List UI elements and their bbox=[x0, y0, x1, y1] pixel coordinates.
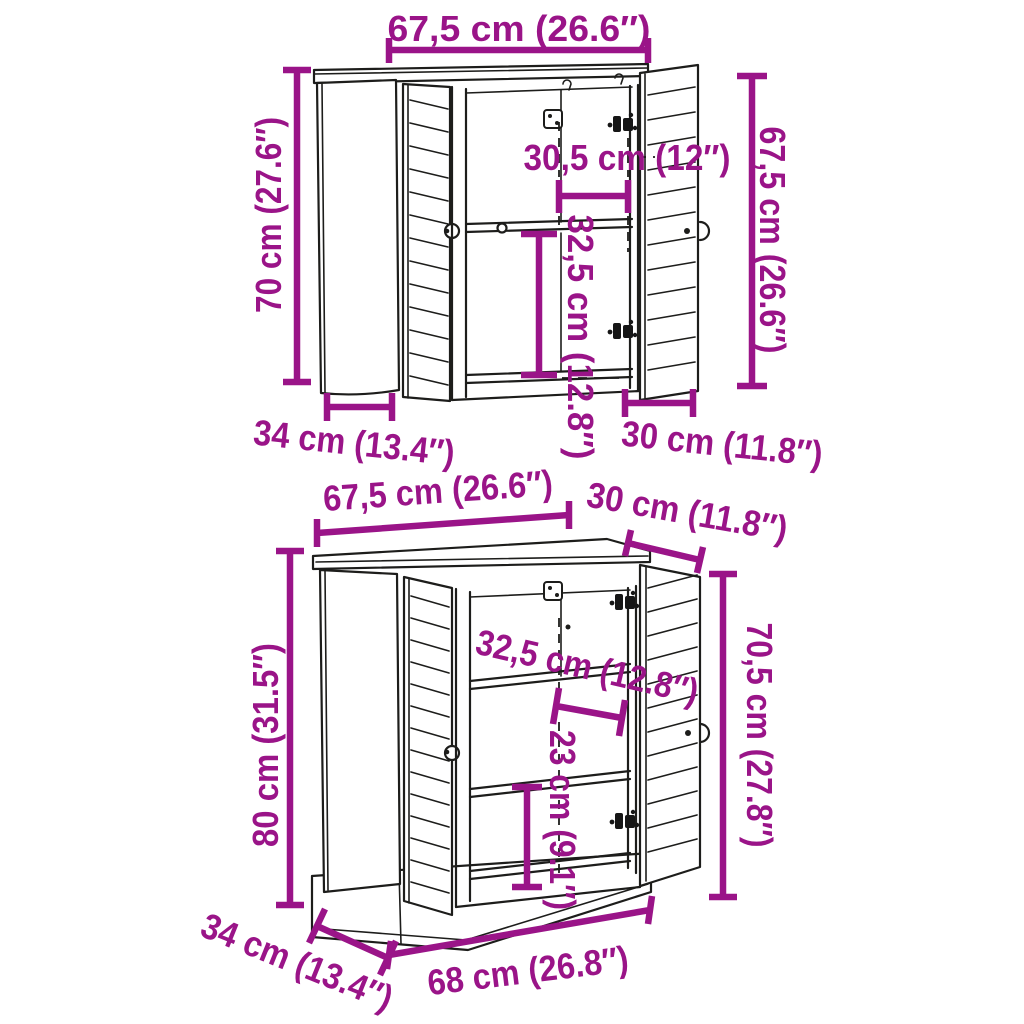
dim-label-lower-top-width: 67,5 cm (26.6″) bbox=[322, 462, 554, 519]
upper-shelf bbox=[466, 219, 632, 232]
upper-right-door-knob-dot bbox=[684, 228, 690, 234]
dim-line-lower-shelf-gap-upper bbox=[553, 688, 625, 736]
dim-label-lower-shelf-gap-lower: 23 cm (9.1″) bbox=[542, 730, 583, 910]
upper-left-panel bbox=[317, 80, 399, 394]
dim-line-upper-inner-width bbox=[559, 180, 628, 213]
dim-label-upper-depth-left: 34 cm (13.4″) bbox=[252, 412, 457, 474]
lower-top-board bbox=[313, 539, 650, 569]
dim-label-lower-left-height: 80 cm (31.5″) bbox=[245, 643, 286, 847]
upper-shelf-peg bbox=[498, 224, 507, 233]
upper-cabinet-drawing bbox=[314, 64, 709, 401]
wall-mount-bracket-icon bbox=[544, 582, 562, 600]
hinge-icon bbox=[610, 591, 640, 610]
lower-right-door-knob-dot bbox=[685, 730, 691, 736]
upper-back-rail bbox=[466, 87, 632, 93]
upper-cabinet: 67,5 cm (26.6″) 70 cm (27.6″) 67,5 cm (2… bbox=[248, 8, 825, 474]
lower-left-panel bbox=[320, 570, 400, 892]
upper-right-door-knob bbox=[700, 222, 709, 240]
upper-bottom-rail bbox=[452, 391, 640, 400]
dim-line-upper-depth-left bbox=[327, 393, 392, 421]
dim-label-upper-inner-height: 32,5 cm (12.8″) bbox=[560, 215, 601, 460]
dim-label-lower-top-depth-right: 30 cm (11.8″) bbox=[584, 474, 791, 550]
upper-frame-left bbox=[452, 87, 466, 400]
dim-label-upper-inner-width: 30,5 cm (12″) bbox=[524, 137, 731, 178]
furniture-dimension-diagram: 67,5 cm (26.6″) 70 cm (27.6″) 67,5 cm (2… bbox=[0, 0, 1024, 1024]
dim-label-lower-right-height: 70,5 cm (27.8″) bbox=[739, 623, 780, 848]
upper-left-door-knob-dot bbox=[445, 229, 450, 234]
hinge-icon bbox=[608, 320, 638, 339]
dim-label-upper-top-width: 67,5 cm (26.6″) bbox=[388, 8, 651, 49]
dim-label-upper-depth-right: 30 cm (11.8″) bbox=[620, 413, 825, 475]
lower-back-screw-dot bbox=[566, 625, 571, 630]
hinge-icon bbox=[610, 810, 640, 829]
dim-label-upper-left-height: 70 cm (27.6″) bbox=[248, 117, 289, 313]
lower-cabinet: 67,5 cm (26.6″) 30 cm (11.8″) 80 cm (31.… bbox=[195, 462, 790, 1019]
lower-right-door-knob bbox=[700, 724, 709, 742]
dim-label-upper-right-height: 67,5 cm (26.6″) bbox=[752, 127, 793, 354]
lower-left-door-knob-dot bbox=[445, 750, 450, 755]
dim-line-upper-inner-height bbox=[521, 234, 557, 375]
lower-frame-right bbox=[628, 586, 636, 873]
hinge-icon bbox=[608, 113, 638, 132]
dim-line-lower-right-height bbox=[709, 574, 737, 897]
lower-cabinet-drawing bbox=[312, 539, 709, 950]
